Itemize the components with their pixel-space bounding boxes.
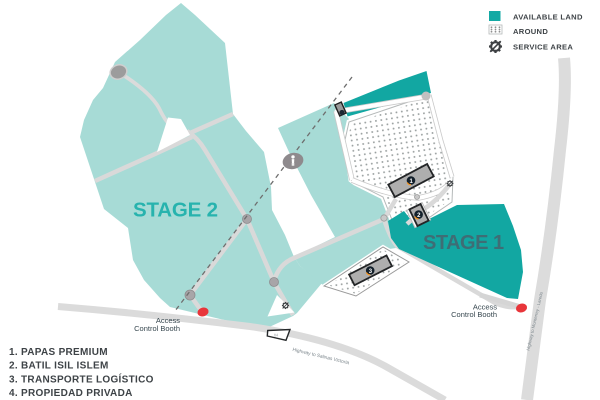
svg-text:Control Booth: Control Booth bbox=[134, 324, 180, 333]
svg-text:SERVICE AREA: SERVICE AREA bbox=[513, 43, 573, 52]
svg-text:AVAILABLE LAND: AVAILABLE LAND bbox=[513, 13, 583, 22]
svg-text:2. BATIL ISIL ISLEM: 2. BATIL ISIL ISLEM bbox=[9, 361, 109, 372]
svg-text:STAGE 1: STAGE 1 bbox=[423, 232, 504, 254]
svg-text:STAGE 2: STAGE 2 bbox=[133, 199, 218, 222]
svg-text:AROUND: AROUND bbox=[513, 27, 548, 36]
svg-text:1. PAPAS PREMIUM: 1. PAPAS PREMIUM bbox=[9, 347, 108, 358]
svg-text:4. PROPIEDAD PRIVADA: 4. PROPIEDAD PRIVADA bbox=[9, 388, 133, 399]
svg-text:3. TRANSPORTE LOGÍSTICO: 3. TRANSPORTE LOGÍSTICO bbox=[9, 372, 154, 385]
svg-text:Control Booth: Control Booth bbox=[451, 310, 497, 319]
svg-text:04: 04 bbox=[274, 333, 278, 337]
